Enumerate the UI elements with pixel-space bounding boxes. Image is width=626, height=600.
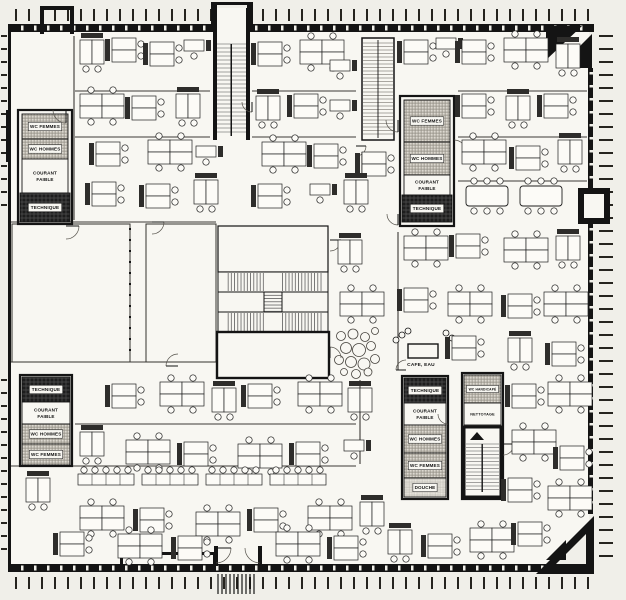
chair [168,407,174,413]
desk [256,96,268,120]
room-nettoyage: NETTOYAGE [464,403,501,425]
window-slit-bottom [528,566,531,571]
window-slit-right [590,436,594,439]
chair [574,285,580,291]
chair [284,45,290,51]
cabinet [247,509,252,531]
desk [126,440,148,452]
cabinet [455,95,460,117]
window-slit-bottom [99,566,102,571]
cabinet [133,509,138,531]
chair [511,364,517,370]
chair [478,317,484,323]
chair [330,33,336,39]
cabinet [505,385,510,407]
cabinet [289,443,294,465]
cabinet [397,289,402,311]
cabinet [195,173,217,178]
desk [350,240,362,264]
window-slit-bottom [47,566,50,571]
chair [204,551,210,557]
desk [560,458,584,470]
cabinet [345,173,367,178]
desk [320,382,342,394]
desk-cluster [206,467,262,485]
chair [534,297,540,303]
chair [191,53,197,59]
window-slit-top [515,26,518,31]
chair [512,231,518,237]
desk [334,536,358,548]
dashed-partition-dot [129,239,131,241]
desk [80,432,92,456]
chair [484,178,490,184]
desk [566,304,588,316]
chair [320,97,326,103]
window-slit-bottom [359,566,362,571]
chair [430,291,436,297]
chair [29,504,35,510]
desk [26,478,38,502]
chair [363,528,369,534]
chair [308,33,314,39]
chair [178,165,184,171]
desk [470,540,492,552]
desk [548,498,570,510]
desk [238,444,260,456]
lounge-seat [364,368,372,376]
chair [586,461,592,467]
cafe-stool [399,332,405,338]
desk [184,454,208,466]
chair [351,453,357,459]
chair [471,178,477,184]
desk [570,394,592,406]
chair [178,133,184,139]
chair [559,70,565,76]
room-wc-handicape: WC HANDICAPÉ [464,375,501,403]
desk [254,508,278,520]
desk [92,182,116,194]
window-slit-bottom [307,566,310,571]
chair [478,351,484,357]
chair [534,263,540,269]
chair [134,433,140,439]
window-slit-top [450,26,453,31]
window-slit-top [151,26,154,31]
chair [306,467,312,473]
chair [434,229,440,235]
window-slit-top [502,26,505,31]
chair [95,66,101,72]
desk [224,388,236,412]
chair [226,537,232,543]
desk [456,234,480,246]
chair [488,43,494,49]
room-courant-faible-top-left: COURANTFAIBLE [22,159,68,193]
desk [508,338,520,362]
desk [518,522,542,534]
cabinet [139,185,144,207]
window-slit-bottom [216,566,219,571]
chair [306,407,312,413]
desk [102,94,124,106]
window-slit-top [255,26,258,31]
desk [526,238,548,250]
chair [578,479,584,485]
desk [170,152,192,164]
chair [253,467,259,473]
chair [308,65,314,71]
cafe-label: CAFE, EAU [407,362,435,368]
dashed-partition-dot [129,305,131,307]
cabinet [213,381,235,386]
conference-table [466,186,508,206]
desk [178,548,202,560]
desk-cluster [466,178,508,214]
desk [80,106,102,118]
chair [306,557,312,563]
desk [182,394,204,406]
desk [518,534,542,546]
desk [296,454,320,466]
window-slit-right [590,85,594,88]
desk [146,184,170,196]
desk [38,478,50,502]
chair [103,467,109,473]
cabinet [53,533,58,555]
lounge-seat [367,342,376,351]
desk [268,96,280,120]
core-center-stair [264,292,282,312]
window-slit-top [372,26,375,31]
desk [80,40,92,64]
window-slit-top [398,26,401,31]
room-label-courant-faible-bot-left: COURANTFAIBLE [34,408,58,419]
chair [110,87,116,93]
stair-wall [211,2,253,5]
desk [196,512,218,524]
desk [462,152,484,164]
chair [544,525,550,531]
chair [172,199,178,205]
window-slit-top [86,26,89,31]
desk [470,292,492,304]
room-technique-bot-left: TECHNIQUE [22,377,70,402]
cabinet [361,495,383,500]
desk [508,306,532,318]
chair [125,467,131,473]
chair [292,135,298,141]
desk [308,506,330,518]
chair [556,511,562,517]
window-slit-right [590,150,594,153]
chair [83,66,89,72]
lounge-seat [341,343,352,354]
chair [360,551,366,557]
cabinet [537,95,542,117]
desk [298,544,320,556]
desk [96,154,120,166]
cabinet [287,95,292,117]
cabinet [366,440,371,451]
room-label-wc-hommes-bot-mid: WC HOMMES [410,437,441,442]
room-label-technique-bot-left: TECHNIQUE [32,387,60,392]
stairwell-top [211,2,253,140]
chair [470,133,476,139]
escalator-treads [226,313,266,331]
chair [270,167,276,173]
chair [478,553,484,559]
cabinet [177,87,199,92]
chair [322,457,328,463]
room-technique-top-left: TECHNIQUE [20,193,70,222]
chair [92,467,98,473]
chair [86,547,92,553]
room-wc-hommes-bot-mid: WC HOMMES [404,425,446,453]
window-slit-top [21,26,24,31]
chair [454,537,460,543]
cafe-stool [393,337,399,343]
cabinet [332,184,337,195]
window-slit-bottom [411,566,414,571]
desk [296,442,320,454]
window-slit-top [112,26,115,31]
chair [41,504,47,510]
desk [330,506,352,518]
window-slit-top [333,26,336,31]
window-slit-top [489,26,492,31]
chair [370,285,376,291]
window-slit-bottom [502,566,505,571]
desk [148,452,170,464]
window-slit-bottom [138,566,141,571]
window-slit-top [125,26,128,31]
chair [341,266,347,272]
chair [156,433,162,439]
chair [204,539,210,545]
cabinet [251,185,256,207]
chair [482,237,488,243]
window-slit-bottom [333,566,336,571]
chair [456,317,462,323]
room-wc-femmes-bot-left: WC FEMMES [22,444,70,465]
desk [492,540,514,552]
lounge-seat [348,329,358,339]
desk [182,382,204,394]
chair [512,263,518,269]
chair [168,375,174,381]
desk [80,506,102,518]
window-slit-bottom [372,566,375,571]
chair [340,147,346,153]
stair-rail [231,44,233,136]
chair [520,455,526,461]
window-slit-bottom [463,566,466,571]
window-slit-bottom [229,566,232,571]
desk [80,518,102,530]
chair [542,423,548,429]
cabinet [27,471,49,476]
window-slit-bottom [346,566,349,571]
window-slit-top [268,26,271,31]
chair [571,70,577,76]
cabinet [352,100,357,111]
room-label-technique-bot-mid: TECHNIQUE [411,388,439,393]
chair [348,317,354,323]
chair [571,262,577,268]
window-slit-bottom [190,566,193,571]
desk [92,194,116,206]
desk [504,38,526,50]
desk [544,94,568,106]
chair [573,166,579,172]
top-notch [70,6,74,34]
chair [443,51,449,57]
chair [578,511,584,517]
chair [148,559,154,565]
chair [388,167,394,173]
top-notch [40,6,74,10]
window-slit-right [590,358,594,361]
desk [150,42,174,54]
core-lower-hall [217,332,329,378]
chair [534,31,540,37]
window-slit-top [177,26,180,31]
desk [170,140,192,152]
desk [196,146,216,157]
desk [570,140,582,164]
cabinet [339,233,361,238]
desk [330,100,350,111]
chair [215,414,221,420]
chair [471,208,477,214]
cabinet [507,89,529,94]
window-slit-right [590,241,594,244]
chair [337,113,343,119]
chair [391,556,397,562]
desk [260,456,282,468]
desk [218,524,240,536]
lounge-seat [352,370,361,379]
floorplan-page: WC FEMMESWC HOMMESCOURANTFAIBLETECHNIQUE… [0,0,626,600]
desk [570,498,592,510]
desk [462,52,486,64]
cabinet [89,143,94,165]
top-notch [40,6,44,34]
window-slit-right [590,371,594,374]
chair [284,467,290,473]
chair [220,467,226,473]
chair [482,249,488,255]
desk [404,248,426,260]
window-slit-right [590,345,594,348]
desk [360,388,372,412]
desk [512,396,536,408]
window-slit-bottom [385,566,388,571]
room-label-courant-faible-top-mid: COURANTFAIBLE [415,180,439,191]
stair-wall [246,8,250,140]
window-slit-bottom [515,566,518,571]
desk [348,388,360,412]
chair [110,531,116,537]
desk [148,440,170,452]
chair [274,399,280,405]
chair [484,208,490,214]
chair [227,414,233,420]
chair [412,229,418,235]
desk [314,156,338,168]
chair [512,31,518,37]
window-slit-bottom [177,566,180,571]
window-slit-right [590,475,594,478]
window-slit-bottom [112,566,115,571]
window-slit-top [541,26,544,31]
dashed-partition-dot [129,261,131,263]
chair [523,364,529,370]
cabinet [397,41,402,63]
room-label-wc-hommes-bot-left: WC HOMMES [31,432,62,437]
chair [273,467,279,473]
cabinet [509,147,514,169]
cabinet [449,235,454,257]
cabinet [327,537,332,559]
chair [337,73,343,79]
dashed-partition-dot [129,349,131,351]
window-slit-top [190,26,193,31]
desk [148,152,170,164]
window-slit-top [99,26,102,31]
desk [248,384,272,396]
desk [508,490,532,502]
chair [190,375,196,381]
desk [362,152,386,164]
desk [118,534,140,546]
chair [176,45,182,51]
cabinet [553,447,558,469]
desk [132,96,156,108]
room-label-courant-faible-top-left: COURANTFAIBLE [33,171,57,182]
chair [122,157,128,163]
desk [504,238,526,250]
desk-cluster [142,467,198,485]
desk [344,180,356,204]
chair [316,499,322,505]
desk [196,524,218,536]
chair [538,387,544,393]
chair [110,499,116,505]
desk [320,394,342,406]
chair [203,159,209,165]
desk [548,394,570,406]
chair [156,165,162,171]
cabinet [455,41,460,63]
cabinet [251,43,256,65]
desk [570,382,592,394]
cabinet [206,40,211,51]
desk [556,236,568,260]
cabinet [545,343,550,365]
cabinet [171,537,176,559]
floorplan-drawing: WC FEMMESWC HOMMESCOURANTFAIBLETECHNIQUE… [0,0,626,600]
desk [188,94,200,118]
desk [60,544,84,556]
desk [330,518,352,530]
cabinet [241,385,246,407]
chair [497,208,503,214]
chair [167,467,173,473]
stair-rail [482,444,483,492]
